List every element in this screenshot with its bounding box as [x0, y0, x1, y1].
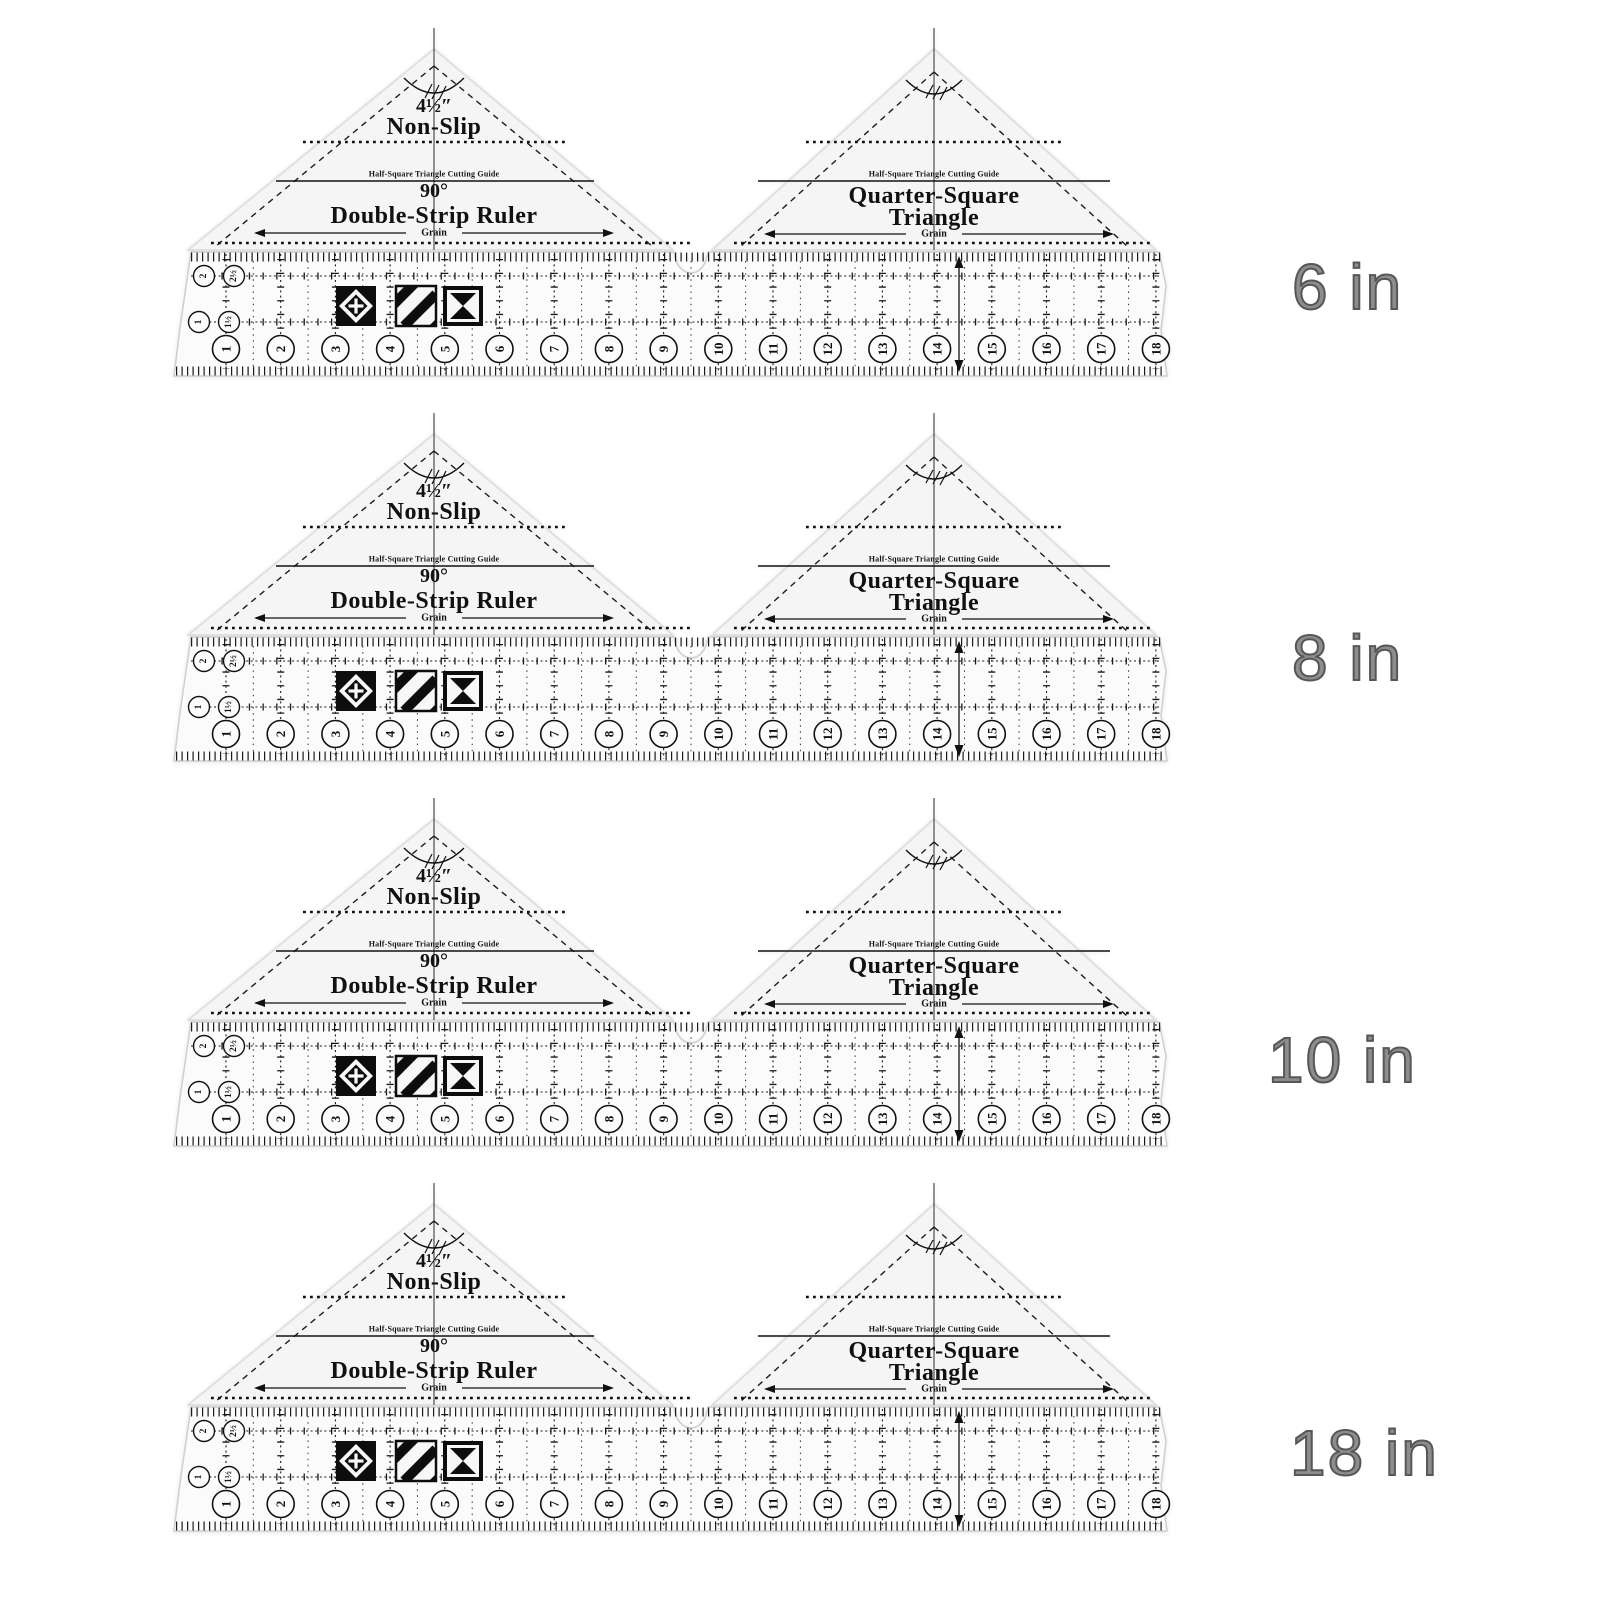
ruler-set-image	[166, 413, 1176, 763]
ruler-set-image	[166, 798, 1176, 1148]
ruler-set-image	[166, 28, 1176, 378]
ruler-set-row-6in	[166, 28, 1176, 378]
ruler-set-row-8in	[166, 413, 1176, 763]
size-label-6in: 6 in	[1292, 255, 1403, 319]
ruler-set-image	[166, 1183, 1176, 1533]
ruler-set-row-18in	[166, 1183, 1176, 1533]
ruler-set-row-10in	[166, 798, 1176, 1148]
size-label-18in: 18 in	[1290, 1421, 1439, 1485]
size-label-8in: 8 in	[1292, 626, 1403, 690]
size-label-10in: 10 in	[1268, 1028, 1417, 1092]
